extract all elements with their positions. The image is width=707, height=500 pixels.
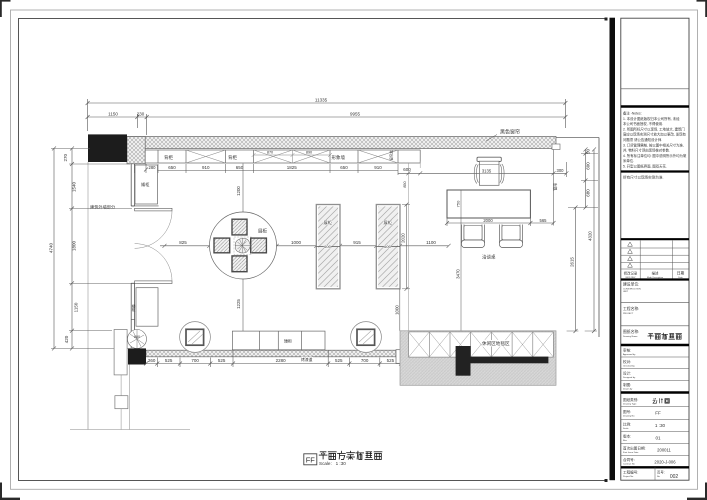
svg-text:1800: 1800 [72, 240, 77, 251]
svg-text:4320: 4320 [588, 231, 593, 241]
svg-text:FF: FF [655, 411, 661, 416]
svg-text:First Issue Date: First Issue Date [623, 451, 639, 454]
svg-text:50: 50 [586, 149, 591, 155]
svg-text:合同号:: 合同号: [623, 457, 635, 462]
svg-text:525: 525 [387, 358, 395, 363]
svg-text:问题须 请公告通知设计师.: 问题须 请公告通知设计师. [623, 137, 662, 142]
svg-text:680: 680 [586, 189, 591, 197]
svg-text:修改记录: 修改记录 [624, 271, 638, 276]
svg-text:200011: 200011 [657, 448, 671, 453]
svg-text:300: 300 [557, 168, 565, 173]
svg-text:11335: 11335 [315, 98, 328, 103]
svg-text:设计:: 设计: [623, 371, 631, 376]
svg-text:校对:: 校对: [623, 359, 631, 364]
svg-text:形象墙: 形象墙 [332, 154, 346, 161]
svg-text:制图:: 制图: [623, 382, 631, 387]
svg-text:4. 所有标注单位均: 图中说明所示外均为毫: 4. 所有标注单位均: 图中说明所示外均为毫 [623, 153, 687, 158]
svg-text:CONSTRUCTION: CONSTRUCTION [623, 288, 641, 290]
svg-text:Scale: Scale [623, 428, 629, 430]
svg-text:1150: 1150 [74, 302, 79, 312]
svg-text:650: 650 [236, 165, 244, 170]
svg-text:1000: 1000 [291, 240, 302, 245]
svg-text:3135: 3135 [482, 168, 492, 173]
svg-text:2000: 2000 [483, 218, 493, 223]
svg-text:展柜: 展柜 [258, 228, 267, 235]
svg-text:1540: 1540 [72, 181, 77, 192]
svg-text:700: 700 [361, 358, 369, 363]
svg-text:Approved by: Approved by [623, 353, 636, 356]
svg-text:图纸名称:: 图纸名称: [623, 329, 639, 334]
svg-text:背柜: 背柜 [164, 154, 173, 161]
svg-text:600: 600 [384, 244, 391, 249]
svg-text:UNIT: UNIT [623, 291, 629, 293]
svg-text:650: 650 [340, 165, 348, 170]
svg-text:背柜: 背柜 [228, 154, 237, 161]
svg-text:915: 915 [353, 240, 361, 245]
svg-text:4740: 4740 [49, 242, 54, 253]
svg-text:Contract No: Contract No [623, 463, 635, 466]
svg-text:2. 所图所标尺寸以现场, 工地放大, 建筑门: 2. 所图所标尺寸以现场, 工地放大, 建筑门 [623, 126, 685, 131]
svg-text:窗帘盒: 窗帘盒 [389, 150, 394, 161]
svg-text:260: 260 [148, 358, 156, 363]
svg-text:窗应以现场实测尺寸放大加以更改, 发现有: 窗应以现场实测尺寸放大加以更改, 发现有 [623, 132, 687, 137]
svg-text:建设单位:: 建设单位: [623, 282, 639, 287]
svg-text:备注 -Notes:: 备注 -Notes: [623, 111, 642, 116]
svg-text:展柜: 展柜 [324, 219, 332, 226]
svg-text:1150: 1150 [108, 112, 118, 117]
svg-text:建筑外墙部分: 建筑外墙部分 [90, 204, 116, 211]
svg-text:650: 650 [168, 165, 176, 170]
svg-text:Drawn by: Drawn by [623, 388, 633, 391]
svg-text:525: 525 [218, 358, 226, 363]
svg-text:图号:: 图号: [623, 409, 631, 414]
svg-text:洽谈桌: 洽谈桌 [482, 254, 496, 261]
svg-text:825: 825 [179, 240, 187, 245]
svg-text:9955: 9955 [350, 112, 361, 117]
svg-text:并, 物料尺寸须由现场核对参数.: 并, 物料尺寸须由现场核对参数. [623, 148, 670, 153]
svg-text:页号:: 页号: [657, 470, 665, 475]
svg-text:2020: 2020 [401, 233, 406, 243]
svg-text:600: 600 [324, 244, 331, 249]
svg-text:600: 600 [586, 162, 591, 170]
svg-text:270: 270 [63, 153, 68, 161]
svg-text:420: 420 [64, 335, 69, 343]
svg-text:1200: 1200 [236, 186, 241, 196]
svg-text:首次出图日期:: 首次出图日期: [623, 446, 646, 451]
svg-text:700: 700 [191, 358, 199, 363]
svg-text:矮柜: 矮柜 [141, 181, 149, 188]
svg-text:600: 600 [134, 335, 140, 339]
svg-text:1 :30: 1 :30 [655, 423, 666, 428]
svg-text:黑色窗帘: 黑色窗帘 [500, 129, 520, 136]
svg-text:280: 280 [149, 165, 157, 170]
svg-text:565: 565 [540, 218, 548, 223]
svg-text:审核:: 审核: [623, 348, 631, 353]
svg-text:870: 870 [267, 151, 273, 155]
svg-text:5. 开型以图纸界面, 图双天花.: 5. 开型以图纸界面, 图双天花. [623, 164, 667, 169]
svg-text:Checked by: Checked by [623, 366, 635, 368]
svg-text:本公司书面授权, 不得使用.: 本公司书面授权, 不得使用. [623, 121, 663, 126]
svg-text:工程编号:: 工程编号: [623, 470, 638, 475]
svg-text:Drawing Name: Drawing Name [623, 335, 638, 338]
svg-text:No.: No. [657, 476, 661, 478]
svg-text:1825: 1825 [287, 165, 298, 170]
svg-text:PROJECT: PROJECT [623, 313, 634, 315]
svg-text:FF: FF [306, 455, 316, 464]
svg-text:米单位.: 米单位. [623, 158, 634, 163]
svg-text:矮柜: 矮柜 [284, 338, 292, 344]
svg-text:描述: 描述 [652, 271, 659, 276]
svg-text:850: 850 [403, 181, 407, 187]
svg-text:工程名称:: 工程名称: [623, 306, 639, 311]
svg-text:910: 910 [202, 165, 210, 170]
svg-text:Designed by: Designed by [623, 377, 636, 379]
svg-text:3470: 3470 [456, 269, 461, 279]
svg-text:柜: 柜 [132, 307, 136, 312]
svg-text:Drawing Type: Drawing Type [623, 403, 637, 406]
svg-text:所有尺寸以现场实测为准.: 所有尺寸以现场实测为准. [623, 175, 664, 180]
svg-text:910: 910 [374, 165, 382, 170]
svg-text:1000: 1000 [394, 305, 399, 315]
svg-text:比例:: 比例: [623, 422, 631, 427]
svg-text:窗帘: 窗帘 [553, 183, 558, 191]
svg-text:Project No: Project No [623, 475, 634, 478]
svg-text:日期: 日期 [677, 271, 685, 276]
svg-text:002: 002 [670, 474, 679, 480]
svg-text:Drawing No: Drawing No [623, 415, 635, 418]
svg-text:1225: 1225 [236, 299, 241, 309]
svg-text:展柜: 展柜 [384, 219, 392, 226]
svg-text:1100: 1100 [426, 240, 436, 245]
svg-text:750: 750 [455, 200, 460, 207]
svg-text:Scale: 1 :30: Scale: 1 :30 [319, 461, 346, 466]
svg-text:版本:: 版本: [623, 434, 631, 439]
svg-text:2615: 2615 [570, 257, 575, 267]
svg-text:2020-J-006: 2020-J-006 [654, 460, 676, 465]
svg-text:烤漆道: 烤漆道 [301, 357, 313, 362]
svg-text:2280: 2280 [276, 358, 287, 363]
svg-text:1. 本设计图纸版权归本公司所有, 未经: 1. 本设计图纸版权归本公司所有, 未经 [623, 116, 680, 121]
svg-text:230: 230 [137, 112, 145, 117]
svg-text:600: 600 [403, 167, 411, 172]
svg-text:01: 01 [655, 436, 661, 441]
svg-text:525: 525 [165, 358, 173, 363]
svg-text:3. 订货管理需核, 按以图中相关尺寸为准,: 3. 订货管理需核, 按以图中相关尺寸为准, [623, 142, 684, 147]
svg-text:890: 890 [306, 151, 312, 155]
svg-text:图纸类别:: 图纸类别: [623, 397, 638, 402]
svg-text:525: 525 [335, 358, 343, 363]
svg-text:休闲区地毯区: 休闲区地毯区 [482, 340, 510, 347]
